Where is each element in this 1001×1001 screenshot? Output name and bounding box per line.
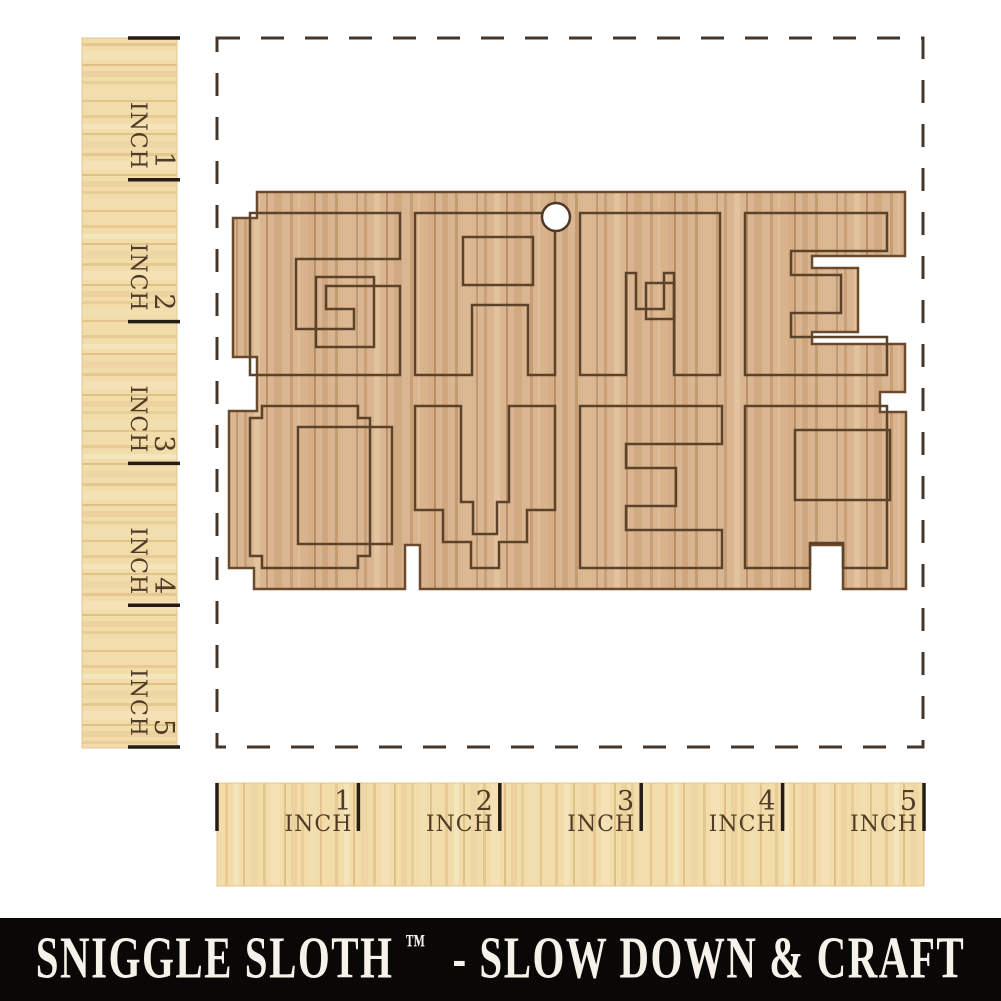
bottom-ruler-unit-1: INCH [284,812,352,837]
left-ruler-number-2: 2 [148,293,179,311]
left-ruler-unit-4: INCH [125,527,150,595]
left-ruler-number-4: 4 [148,577,179,595]
product-photo: 1 INCH 2 INCH 3 INCH 4 INCH 5 INCH 1 I [0,0,1001,1001]
left-ruler-unit-5: INCH [125,669,150,737]
trademark-symbol: ™ [405,930,426,961]
brand-name: SNIGGLE SLOTH [36,925,394,991]
bottom-ruler-unit-4: INCH [709,812,777,837]
bottom-ruler-unit-2: INCH [426,812,494,837]
left-ruler-number-1: 1 [148,152,179,170]
brand-tagline: - SLOW DOWN & CRAFT [452,925,965,991]
bottom-ruler-unit-5: INCH [850,812,918,837]
bottom-ruler-unit-3: INCH [567,812,635,837]
left-ruler: 1 INCH 2 INCH 3 INCH 4 INCH 5 INCH [82,38,180,748]
left-ruler-unit-1: INCH [125,102,150,170]
left-ruler-number-5: 5 [148,719,179,737]
left-ruler-unit-2: INCH [125,244,150,312]
left-ruler-number-3: 3 [148,435,179,453]
left-ruler-unit-3: INCH [125,385,150,453]
hanging-hole [542,203,570,231]
product-photo-canvas: 1 INCH 2 INCH 3 INCH 4 INCH 5 INCH 1 I [0,0,1001,1001]
bottom-ruler: 1 INCH 2 INCH 3 INCH 4 INCH 5 INCH [217,783,924,886]
game-over-wood-plaque [229,192,906,589]
